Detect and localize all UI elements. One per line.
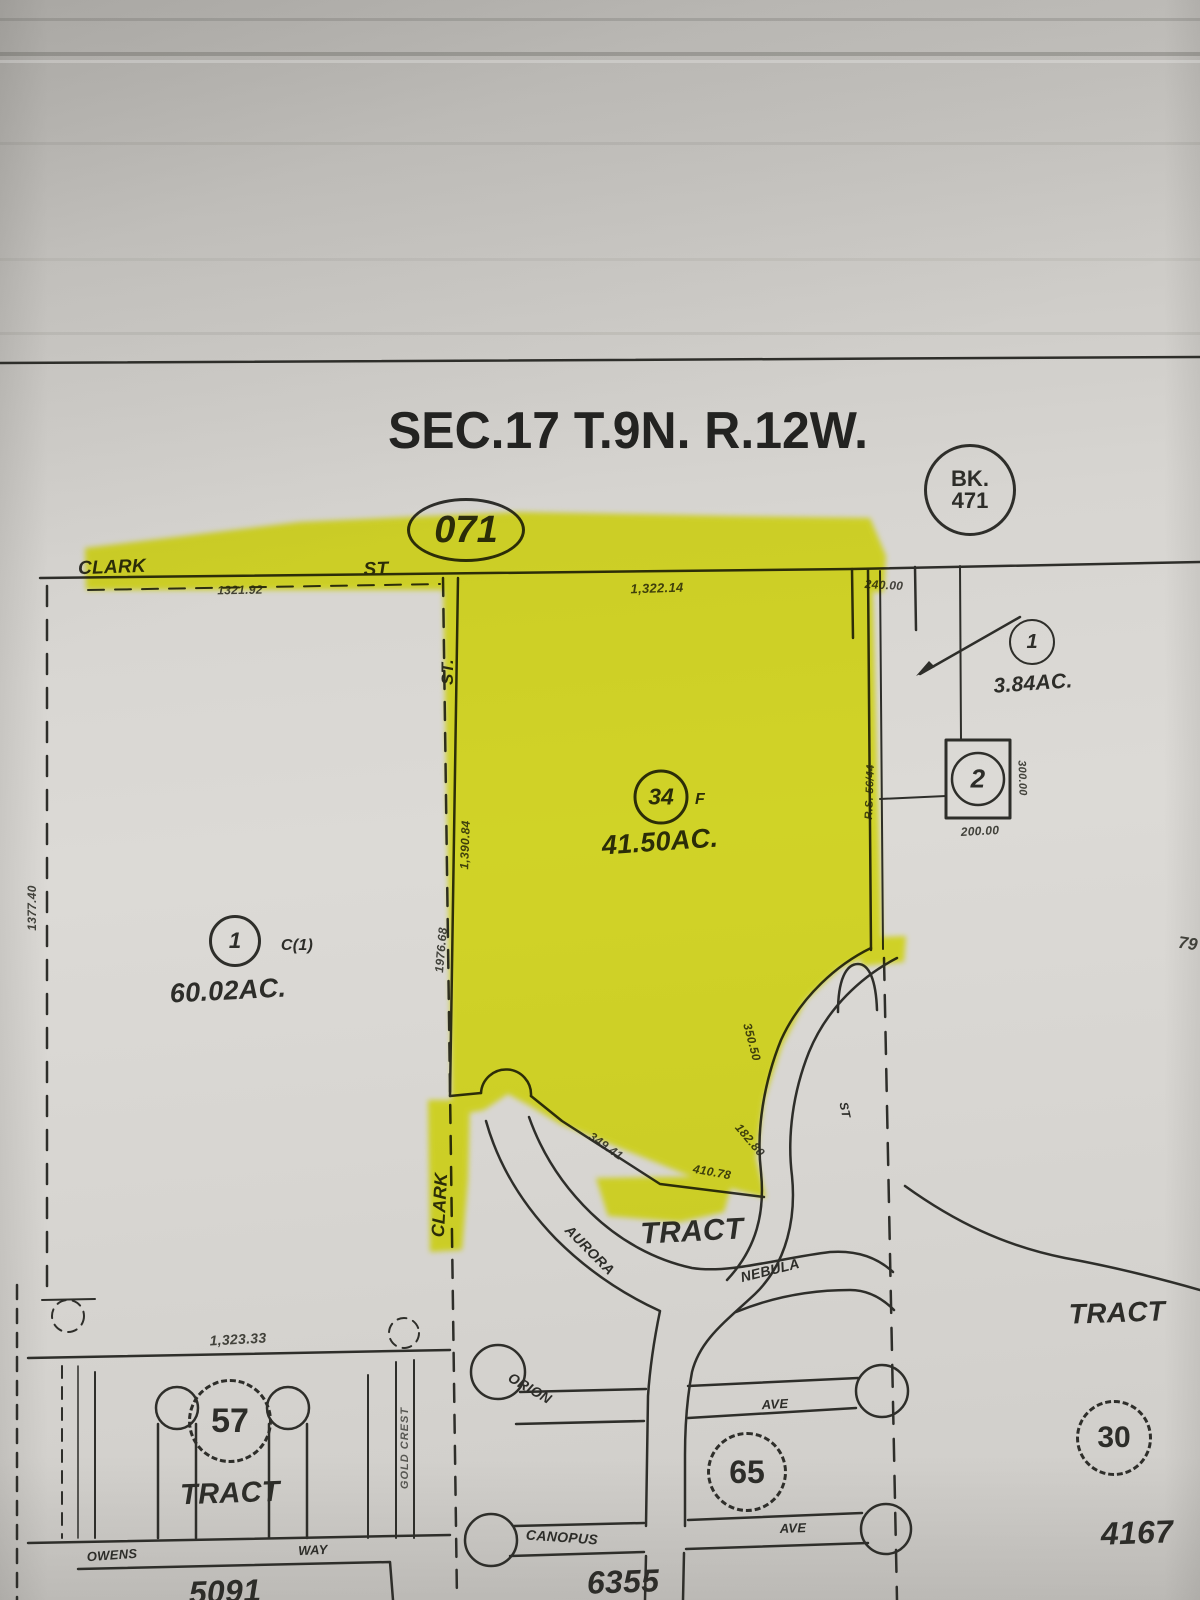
highlight-parcel-34 bbox=[443, 568, 882, 1198]
highlight-east-nub bbox=[858, 936, 906, 966]
highlighter-layer bbox=[0, 0, 1200, 1600]
plat-map-photo: SEC.17 T.9N. R.12W. 071 BK. 471 CLARK 13… bbox=[0, 0, 1200, 1600]
highlight-tract-blob bbox=[596, 1176, 734, 1222]
highlight-clark-strip bbox=[428, 1100, 470, 1252]
